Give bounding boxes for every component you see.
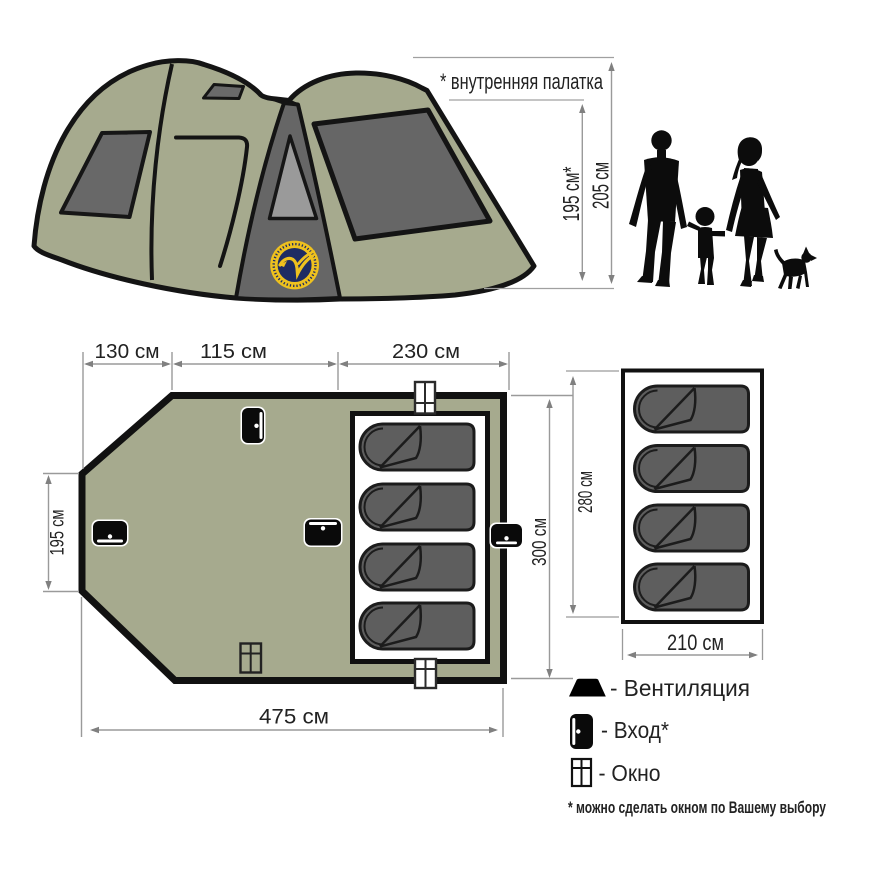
svg-text:195 см: 195 см xyxy=(48,510,69,556)
svg-text:195 см*: 195 см* xyxy=(558,166,584,221)
svg-text:115 см: 115 см xyxy=(200,341,267,363)
svg-text:- Вентиляция: - Вентиляция xyxy=(610,675,750,701)
svg-text:130 см: 130 см xyxy=(95,341,160,363)
svg-text:475 см: 475 см xyxy=(259,706,329,729)
svg-text:230 см: 230 см xyxy=(392,341,460,363)
svg-text:- Окно: - Окно xyxy=(599,760,661,786)
svg-text:- Вход*: - Вход* xyxy=(601,717,669,743)
svg-text:* внутренняя палатка: * внутренняя палатка xyxy=(440,69,604,94)
svg-text:* можно сделать окном по Вашем: * можно сделать окном по Вашему выбору xyxy=(568,799,827,817)
svg-text:300 см: 300 см xyxy=(529,518,551,566)
svg-text:210 см: 210 см xyxy=(667,630,724,655)
svg-text:205 см: 205 см xyxy=(588,162,614,209)
svg-text:280 см: 280 см xyxy=(575,471,597,513)
